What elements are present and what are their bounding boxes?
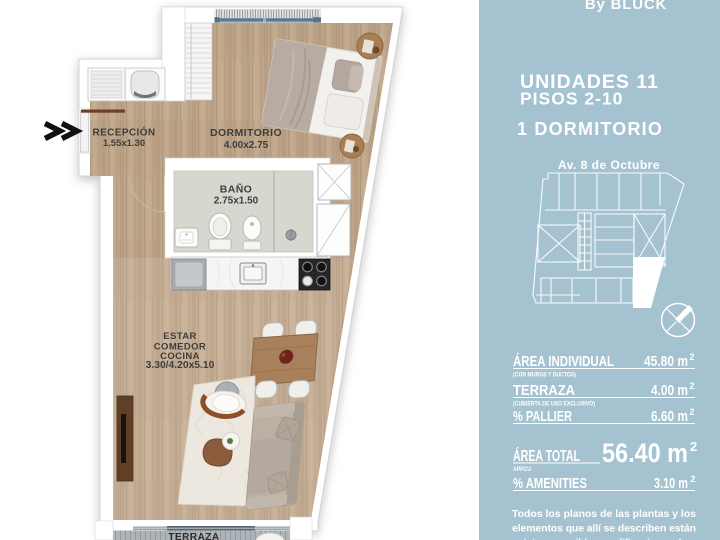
- svg-text:3.10 m: 3.10 m: [654, 475, 688, 492]
- svg-text:TERRAZA: TERRAZA: [168, 532, 219, 540]
- svg-text:% PALLIER: % PALLIER: [513, 408, 572, 425]
- svg-text:2: 2: [690, 352, 695, 362]
- svg-text:1.55x1.30: 1.55x1.30: [103, 138, 145, 149]
- svg-text:% AMENITIES: % AMENITIES: [513, 475, 587, 492]
- svg-text:PISOS 2-10: PISOS 2-10: [520, 89, 623, 109]
- svg-text:6.60 m: 6.60 m: [651, 408, 688, 425]
- svg-text:ÁREA INDIVIDUAL: ÁREA INDIVIDUAL: [513, 353, 614, 370]
- svg-text:Av. 8 de Octubre: Av. 8 de Octubre: [558, 158, 660, 172]
- svg-text:BAÑO: BAÑO: [220, 183, 253, 196]
- svg-text:2: 2: [690, 407, 695, 417]
- svg-text:DORMITORIO: DORMITORIO: [210, 127, 282, 139]
- svg-text:ESTAR: ESTAR: [163, 331, 197, 342]
- svg-text:APPCU: APPCU: [513, 466, 531, 473]
- svg-text:56.40 m: 56.40 m: [602, 438, 688, 468]
- svg-text:1 DORMITORIO: 1 DORMITORIO: [517, 119, 663, 139]
- svg-text:RECEPCIÓN: RECEPCIÓN: [92, 126, 155, 139]
- svg-text:4.00 m: 4.00 m: [651, 382, 688, 399]
- svg-text:4.00x2.75: 4.00x2.75: [224, 140, 269, 151]
- svg-text:45.80 m: 45.80 m: [644, 353, 688, 370]
- svg-text:TERRAZA: TERRAZA: [513, 382, 575, 399]
- svg-text:3.30/4.20x5.10: 3.30/4.20x5.10: [146, 360, 215, 371]
- svg-text:ÁREA TOTAL: ÁREA TOTAL: [513, 448, 580, 465]
- svg-text:2: 2: [690, 439, 697, 454]
- svg-text:(CON MUROS Y DUCTOS): (CON MUROS Y DUCTOS): [513, 372, 576, 379]
- svg-text:2: 2: [690, 381, 695, 391]
- svg-text:elementos que allí se describe: elementos que allí se describen están: [512, 523, 696, 535]
- svg-text:Todos los planos de las planta: Todos los planos de las plantas y los: [512, 508, 696, 520]
- svg-text:2.75x1.50: 2.75x1.50: [214, 196, 259, 207]
- svg-text:(CUBIERTA DE USO EXCLUSIVO): (CUBIERTA DE USO EXCLUSIVO): [513, 401, 595, 408]
- svg-text:By BLUCK: By BLUCK: [585, 0, 667, 13]
- svg-text:2: 2: [691, 474, 696, 484]
